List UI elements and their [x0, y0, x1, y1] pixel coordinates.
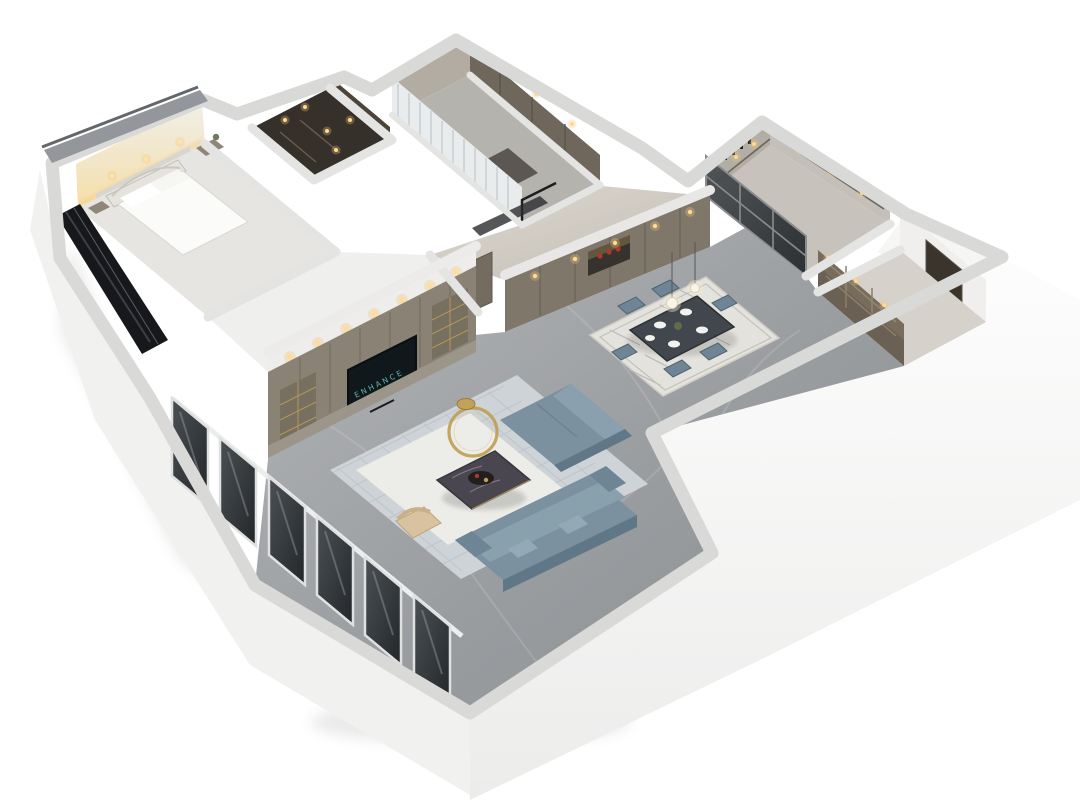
table-centerpiece [674, 322, 682, 330]
decor-tray [468, 471, 494, 485]
gold-stool [457, 399, 475, 410]
floorplan-render: ENHANCE [0, 0, 1080, 809]
floorplan-svg: ENHANCE [0, 0, 1080, 809]
nightstand-plant [213, 134, 219, 140]
